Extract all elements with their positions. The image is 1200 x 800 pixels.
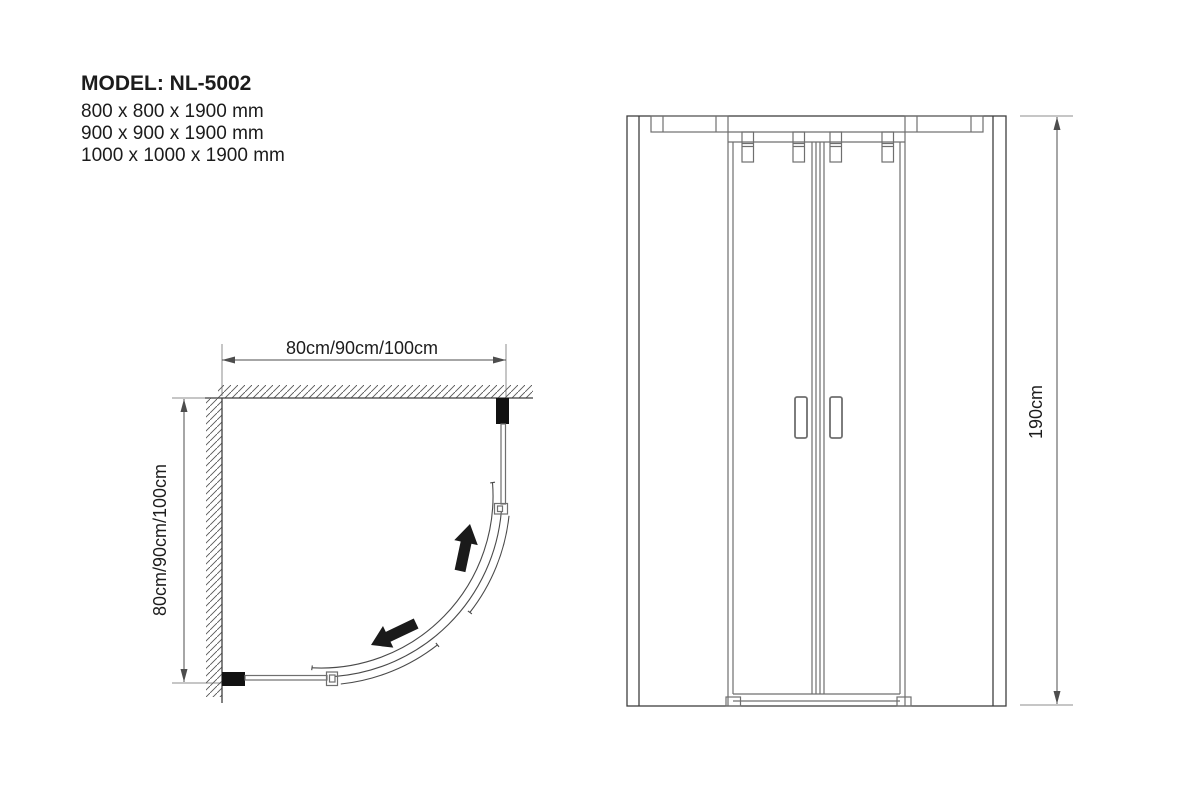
door-meeting-stiles <box>812 142 824 694</box>
fixed-panel-top <box>501 424 506 504</box>
door-handle-right <box>830 397 842 438</box>
bottom-rail <box>726 694 911 706</box>
door-arc-group <box>312 482 509 684</box>
wall-profile-bottom <box>222 672 245 686</box>
dim-arrow-up <box>1054 117 1061 130</box>
plan-depth-label: 80cm/90cm/100cm <box>150 464 170 616</box>
plan-width-label: 80cm/90cm/100cm <box>286 338 438 358</box>
door-panels <box>726 132 911 706</box>
roller <box>742 132 754 162</box>
door-handle-left <box>795 397 807 438</box>
size-option-3: 1000 x 1000 x 1900 mm <box>81 145 285 166</box>
elevation-height-dimension: 190cm <box>1020 116 1073 705</box>
wall-hatch-left <box>206 398 222 703</box>
spec-sheet: MODEL: NL-5002 800 x 800 x 1900 mm 900 x… <box>0 0 1200 800</box>
wall-hatch-top <box>205 385 533 398</box>
technical-drawing: MODEL: NL-5002 800 x 800 x 1900 mm 900 x… <box>0 0 1200 800</box>
dim-arrow-left <box>222 357 235 364</box>
spec-header: MODEL: NL-5002 800 x 800 x 1900 mm 900 x… <box>81 72 285 166</box>
wall-profile-top <box>496 398 509 424</box>
slide-direction-arrow-up <box>448 522 481 574</box>
elevation-view: 190cm <box>627 116 1073 706</box>
plan-view: 80cm/90cm/100cm 80cm/90cm/100cm <box>150 338 533 703</box>
elevation-height-label: 190cm <box>1026 385 1046 439</box>
size-option-2: 900 x 900 x 1900 mm <box>81 123 264 144</box>
fixed-panel-bottom <box>245 676 327 681</box>
top-track <box>651 116 983 142</box>
roller-hangers <box>742 132 894 162</box>
roller <box>882 132 894 162</box>
roller <box>830 132 842 162</box>
dim-arrow-right <box>493 357 506 364</box>
door-handle-bottom <box>327 672 338 686</box>
dim-arrow-up <box>181 399 188 412</box>
dim-arrow-down <box>181 669 188 682</box>
slide-direction-arrow-left <box>366 613 421 656</box>
size-option-1: 800 x 800 x 1900 mm <box>81 101 264 122</box>
model-label: MODEL: NL-5002 <box>81 72 251 95</box>
dim-arrow-down <box>1054 691 1061 704</box>
roller <box>793 132 805 162</box>
